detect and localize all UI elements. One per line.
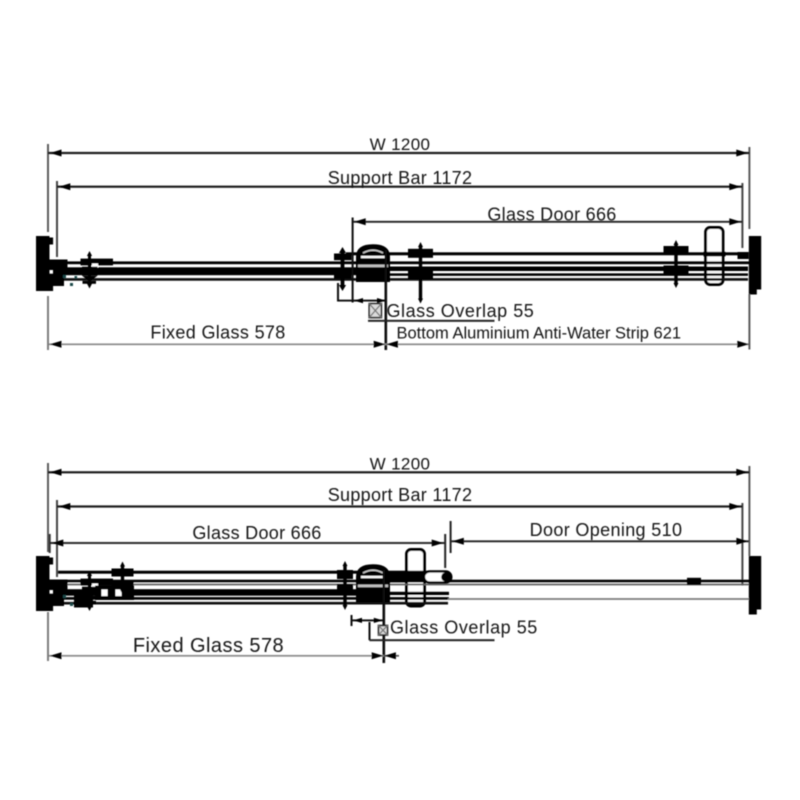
svg-text:W 1200: W 1200 [370, 135, 431, 154]
svg-text:Glass Door 666: Glass Door 666 [487, 204, 616, 224]
svg-text:W 1200: W 1200 [370, 455, 431, 474]
svg-text:Door Opening 510: Door Opening 510 [530, 520, 683, 540]
svg-text:Glass Overlap 55: Glass Overlap 55 [387, 301, 535, 321]
svg-text:Glass Overlap 55: Glass Overlap 55 [390, 617, 538, 637]
svg-text:Fixed Glass 578: Fixed Glass 578 [133, 635, 284, 657]
svg-text:Glass Door 666: Glass Door 666 [192, 523, 321, 543]
svg-text:Support Bar 1172: Support Bar 1172 [328, 485, 473, 505]
svg-text:Support Bar 1172: Support Bar 1172 [328, 168, 473, 188]
svg-text:Bottom Aluminium Anti-Water St: Bottom Aluminium Anti-Water Strip 621 [397, 325, 682, 343]
svg-text:Fixed Glass 578: Fixed Glass 578 [150, 323, 285, 343]
